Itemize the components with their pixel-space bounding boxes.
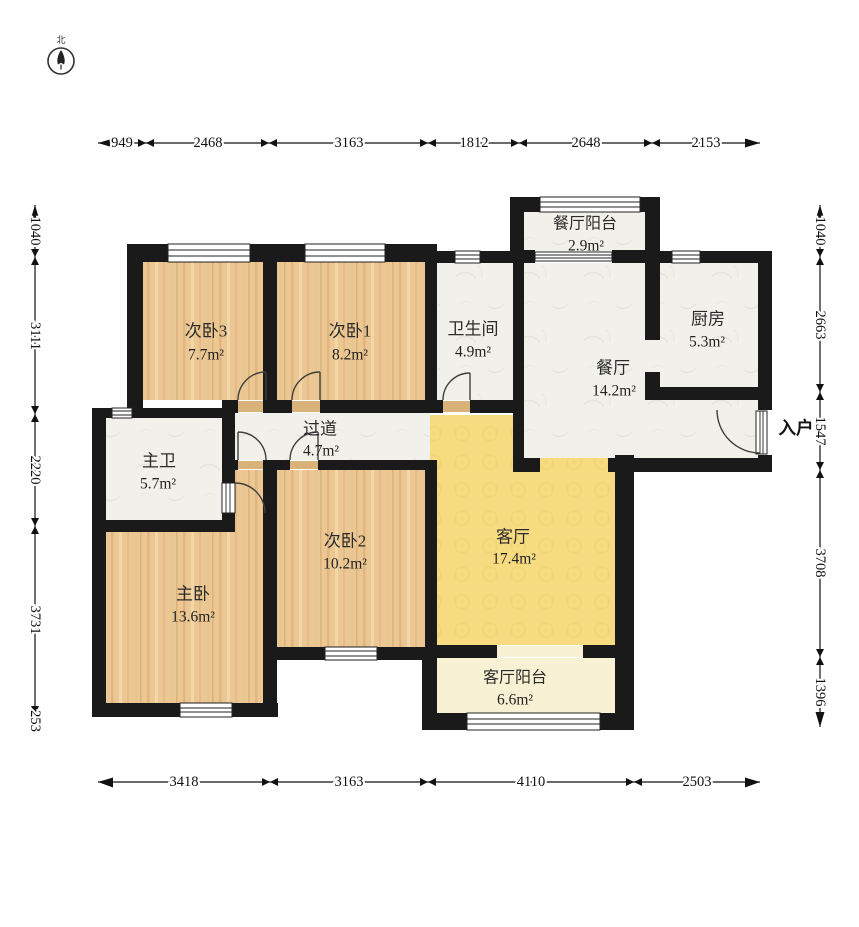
window-kitchen — [672, 251, 700, 263]
bathroom-name: 卫生间 — [448, 320, 499, 339]
dining-name: 餐厅 — [596, 359, 630, 378]
window-bedroom1 — [305, 244, 385, 262]
entry-label: 入户 — [779, 418, 814, 438]
window-bedroom3 — [168, 244, 250, 262]
dim-right-3: 3708 — [812, 549, 828, 578]
bedroom2-name: 次卧2 — [324, 532, 367, 551]
kitchen-area: 5.3m² — [689, 334, 725, 351]
living-balcony-opening — [497, 646, 583, 657]
dim-right-0: 1040 — [812, 217, 828, 246]
bedroom3-area: 7.7m² — [188, 347, 224, 364]
dim-top-0: 949 — [111, 135, 133, 151]
master-bath-name: 主卫 — [142, 452, 176, 471]
living-balcony-name: 客厅阳台 — [483, 669, 547, 687]
dimension-right: 1040 2663 1547 3708 1396 — [812, 205, 828, 727]
compass: 北 — [48, 35, 74, 74]
passage-threshold — [238, 461, 266, 469]
dim-bottom-2: 4110 — [517, 774, 545, 790]
master-bath-door-leaf — [222, 483, 235, 513]
bathroom-area: 4.9m² — [455, 344, 491, 361]
window-living-balcony — [467, 713, 600, 730]
bedroom1-threshold — [292, 401, 320, 412]
dim-right-2: 1547 — [812, 417, 828, 446]
living-name: 客厅 — [496, 528, 530, 547]
entry-door-leaf — [756, 411, 767, 454]
dimension-left: 1040 3111 2220 3731 253 — [27, 205, 43, 732]
window-bathroom — [455, 251, 480, 263]
bedroom1-name: 次卧1 — [329, 322, 372, 341]
dim-left-2: 2220 — [27, 456, 43, 485]
dim-top-2: 3163 — [335, 135, 364, 151]
window-dining-balcony — [540, 197, 640, 212]
bedroom2-threshold — [290, 461, 318, 469]
hallway-name: 过道 — [303, 420, 337, 439]
bedroom3-name: 次卧3 — [185, 322, 228, 341]
window-master-bedroom — [180, 703, 232, 717]
master-bath-area: 5.7m² — [140, 476, 176, 493]
dining-area: 14.2m² — [592, 383, 636, 400]
dim-left-4: 253 — [27, 710, 43, 732]
kitchen-doorway-floor — [645, 340, 660, 372]
dim-top-5: 2153 — [692, 135, 721, 151]
dimension-bottom: 3418 3163 4110 2503 — [98, 774, 760, 790]
floor-plan-page: 次卧3 7.7m² 次卧1 8.2m² 卫生间 4.9m² 餐厅阳台 2.9m²… — [0, 0, 859, 927]
dim-right-4: 1396 — [812, 678, 828, 707]
kitchen-name: 厨房 — [691, 310, 725, 329]
master-bedroom-name: 主卧 — [176, 585, 210, 604]
dim-left-1: 3111 — [27, 322, 43, 350]
hallway-area: 4.7m² — [303, 443, 339, 460]
dim-bottom-0: 3418 — [170, 774, 199, 790]
dim-right-1: 2663 — [812, 311, 828, 340]
living-dining-opening — [540, 459, 608, 471]
window-master-bath — [112, 408, 132, 418]
bathroom-threshold — [443, 401, 470, 412]
dim-bottom-3: 2503 — [683, 774, 712, 790]
dining-balcony-name: 餐厅阳台 — [553, 215, 617, 233]
dim-bottom-1: 3163 — [335, 774, 364, 790]
dim-top-1: 2468 — [194, 135, 223, 151]
dim-top-4: 2648 — [572, 135, 601, 151]
dim-left-3: 3731 — [27, 606, 43, 635]
window-bedroom2 — [325, 647, 377, 660]
bedroom1-area: 8.2m² — [332, 347, 368, 364]
living-area: 17.4m² — [492, 551, 536, 568]
compass-north-label: 北 — [56, 35, 65, 45]
dim-top-3: 1812 — [460, 135, 489, 151]
passage-floor — [235, 470, 263, 532]
bedroom3-threshold — [238, 401, 266, 412]
dim-left-0: 1040 — [27, 217, 43, 246]
floor-plan-canvas: 次卧3 7.7m² 次卧1 8.2m² 卫生间 4.9m² 餐厅阳台 2.9m²… — [0, 0, 859, 927]
master-bedroom-area: 13.6m² — [171, 609, 215, 626]
dimension-top: 949 2468 3163 1812 2648 2153 — [98, 135, 760, 151]
bedroom2-area: 10.2m² — [323, 556, 367, 573]
dining-balcony-area: 2.9m² — [568, 238, 604, 255]
living-balcony-area: 6.6m² — [497, 692, 533, 709]
